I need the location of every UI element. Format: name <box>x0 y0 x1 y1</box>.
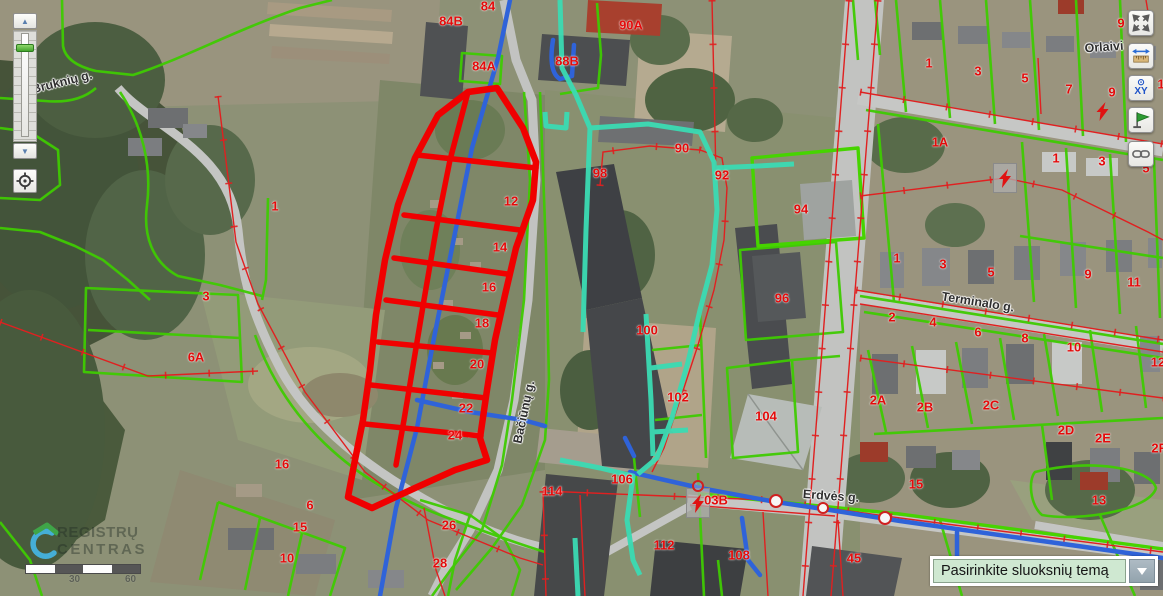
zoom-slider[interactable]: ▲ ▼ <box>13 13 37 159</box>
green-flag-icon <box>1131 110 1151 130</box>
flag-button[interactable] <box>1128 107 1154 133</box>
fullscreen-button[interactable] <box>1128 10 1154 36</box>
locate-button[interactable] <box>13 169 37 193</box>
ruler-arrows-icon <box>1131 46 1151 66</box>
xy-coordinates-button[interactable]: ⊙ XY <box>1128 75 1154 101</box>
crosshair-icon <box>16 172 34 190</box>
share-link-button[interactable] <box>1128 141 1154 167</box>
map-application: 8484B90A84A88B90989294961001021041061141… <box>0 0 1163 596</box>
layer-theme-select[interactable]: Pasirinkite sluoksnių temą <box>930 556 1158 586</box>
map-canvas[interactable] <box>0 0 1163 596</box>
expand-arrows-icon <box>1131 13 1151 33</box>
measure-button[interactable] <box>1128 43 1154 69</box>
zoom-track[interactable] <box>13 30 37 142</box>
zoom-handle[interactable] <box>16 44 34 52</box>
layer-theme-value: Pasirinkite sluoksnių temą <box>933 559 1126 583</box>
target-dot-icon: ⊙ <box>1137 79 1145 86</box>
chain-link-icon <box>1131 144 1151 164</box>
xy-label: XY <box>1134 86 1147 97</box>
up-arrow-icon: ▲ <box>21 17 29 26</box>
chevron-down-icon <box>1137 568 1147 575</box>
zoom-out-button[interactable]: ▼ <box>13 143 37 159</box>
down-arrow-icon: ▼ <box>21 147 29 156</box>
zoom-in-button[interactable]: ▲ <box>13 13 37 29</box>
dropdown-arrow-button[interactable] <box>1129 559 1155 583</box>
